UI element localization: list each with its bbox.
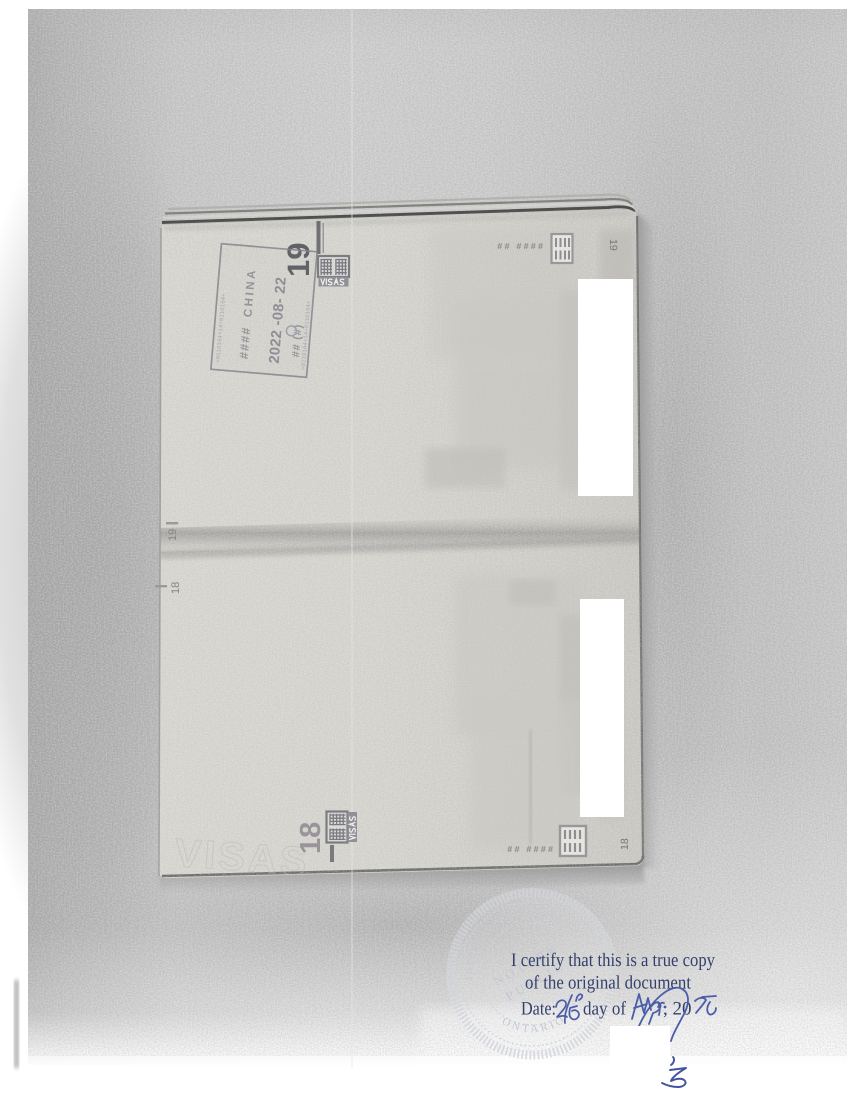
svg-text:#### ##: #### ## [495,241,543,251]
svg-text:19: 19 [167,529,179,541]
svg-text:#### ##: #### ## [505,844,553,854]
svg-text:VISAS: VISAS [173,831,311,884]
svg-text:I certify that this is a true: I certify that this is a true copy [511,950,715,971]
svg-text:18: 18 [295,822,327,854]
svg-text:####: #### [237,326,254,360]
svg-text:18: 18 [170,582,182,594]
svg-text:19: 19 [607,239,619,251]
svg-text:18: 18 [619,838,631,850]
svg-text:Date:: Date: [521,999,556,1020]
svg-text:day of: day of [583,999,627,1020]
